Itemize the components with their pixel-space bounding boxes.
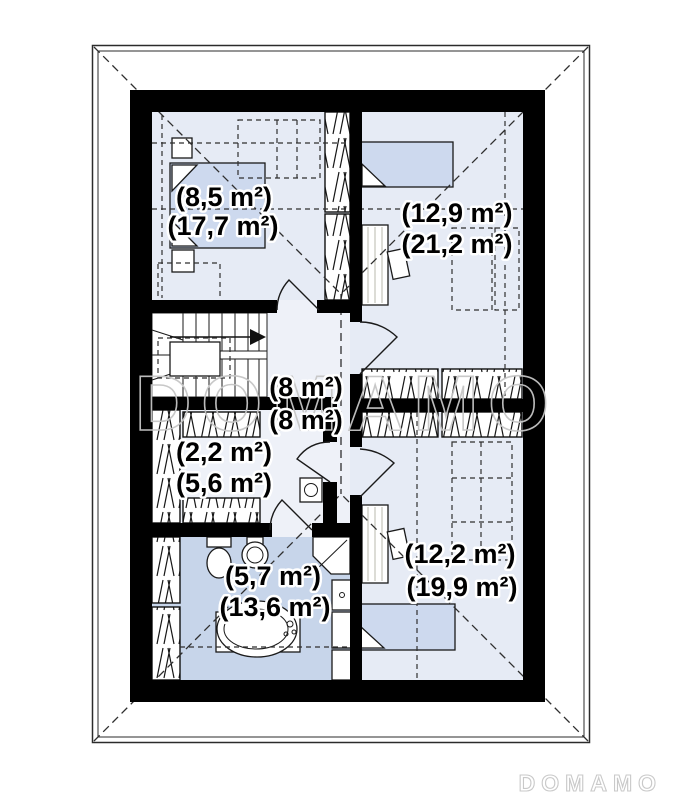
wardrobe-hatch [152, 537, 180, 603]
bedroom-bottom-right-area-gross: (19,9 m²) [406, 572, 517, 602]
bathroom-cabinet [332, 580, 352, 610]
exterior-wall-top [130, 90, 545, 112]
toilet-tank [207, 537, 231, 547]
exterior-wall-bottom [130, 680, 545, 702]
wardrobe-hatch [325, 112, 350, 212]
boiler [300, 478, 322, 502]
hallway-area-net: (8 m²) [269, 372, 343, 402]
interior-wall [323, 482, 337, 530]
bathroom-area-net: (5,7 m²) [225, 561, 321, 591]
interior-wall [152, 300, 277, 313]
wardrobe-room-area-gross: (5,6 m²) [176, 468, 272, 498]
interior-wall [152, 523, 272, 537]
bedroom-bottom-right-area-net: (12,2 m²) [404, 539, 515, 569]
floor-plan-drawing: DOMAMO (8,5 m²) (17,7 m²) (12,9 m²) (21,… [0, 0, 682, 800]
wardrobe-hatch [152, 607, 180, 680]
wardrobe-room-area-net: (2,2 m²) [176, 437, 272, 467]
interior-wall [317, 300, 362, 313]
bathroom-cabinet [332, 650, 352, 680]
interior-wall [350, 495, 362, 680]
wardrobe-room-fixtures [300, 478, 322, 502]
interior-wall [350, 112, 362, 322]
bedroom-top-left-area-gross: (17,7 m²) [167, 211, 278, 241]
floor-plan-page: DOMAMO (8,5 m²) (17,7 m²) (12,9 m²) (21,… [0, 0, 682, 800]
brand-logo: DOMAMO [519, 770, 662, 796]
bathroom-area-gross: (13,6 m²) [219, 592, 330, 622]
bedroom-top-right-area-gross: (21,2 m²) [401, 229, 512, 259]
watermark-text: DOMAMO [135, 359, 559, 447]
bedroom-top-left-area-net: (8,5 m²) [176, 182, 272, 212]
nightstand [172, 138, 192, 158]
bedroom-top-right-area-net: (12,9 m²) [401, 198, 512, 228]
interior-wall [312, 523, 362, 537]
hallway-area-gross: (8 m²) [269, 405, 343, 435]
nightstand [172, 250, 194, 272]
wardrobe-hatch [325, 214, 350, 300]
wardrobe-hatch [183, 498, 260, 523]
bathroom-cabinet [332, 612, 352, 648]
